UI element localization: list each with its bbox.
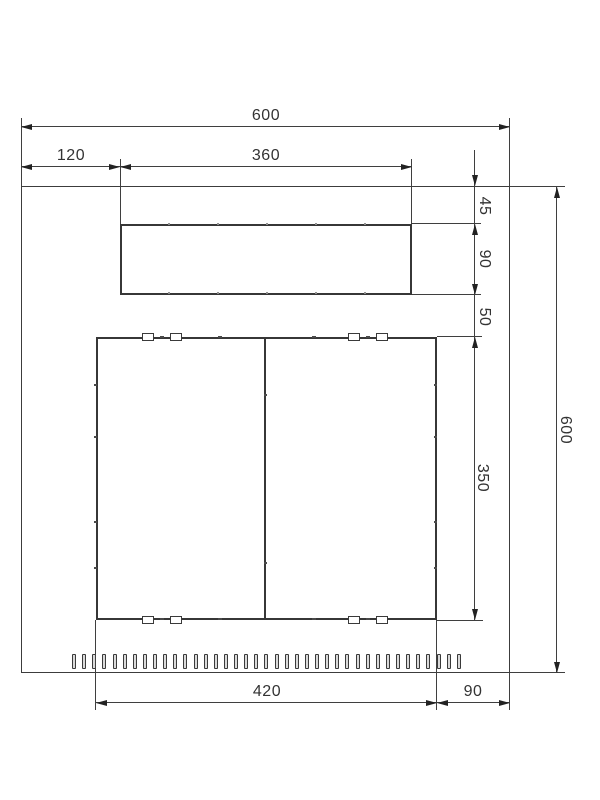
hinge-tick	[434, 384, 437, 386]
hinge-tick	[264, 562, 267, 564]
vent-slot	[72, 654, 76, 669]
arrow-icon	[96, 700, 107, 706]
dim-label-vent-height: 90	[475, 250, 493, 269]
vent-edge-dot	[266, 292, 268, 294]
dim-label-door-height: 350	[473, 464, 491, 492]
vent-slot	[406, 654, 410, 669]
arrow-icon	[472, 224, 478, 235]
dim-label-overall-height: 600	[556, 416, 574, 444]
vent-slot	[396, 654, 400, 669]
vent-slot-row	[72, 654, 461, 669]
vent-slot	[366, 654, 370, 669]
door-clip	[376, 616, 388, 624]
vent-opening-rect	[120, 224, 412, 295]
hinge-tick	[434, 521, 437, 523]
vent-slot	[113, 654, 117, 669]
dim-label-overall-width: 600	[252, 107, 280, 125]
edge-mark	[218, 336, 222, 338]
arrow-icon	[472, 284, 478, 295]
vent-slot	[356, 654, 360, 669]
vent-edge-dot	[266, 223, 268, 225]
ext-line	[412, 223, 481, 224]
vent-slot	[376, 654, 380, 669]
dim-label-vent-width: 360	[252, 147, 280, 165]
hinge-tick	[434, 567, 437, 569]
edge-mark	[160, 618, 164, 620]
edge-mark	[366, 618, 370, 620]
arrow-icon	[554, 662, 560, 673]
edge-mark	[312, 618, 316, 620]
hinge-tick	[94, 384, 97, 386]
dim-line-offset-vent	[21, 166, 412, 167]
vent-slot	[153, 654, 157, 669]
vent-slot	[123, 654, 127, 669]
door-clip	[348, 333, 360, 341]
arrow-icon	[472, 337, 478, 348]
door-clip	[142, 616, 154, 624]
door-clip	[170, 333, 182, 341]
vent-slot	[275, 654, 279, 669]
vent-slot	[234, 654, 238, 669]
arrow-icon	[472, 175, 478, 186]
vent-edge-dot	[217, 292, 219, 294]
dim-label-right-offset: 90	[464, 683, 483, 701]
arrow-icon	[499, 700, 510, 706]
hinge-tick	[94, 521, 97, 523]
vent-slot	[325, 654, 329, 669]
vent-slot	[194, 654, 198, 669]
vent-slot	[254, 654, 258, 669]
ext-line	[412, 294, 481, 295]
vent-slot	[183, 654, 187, 669]
arrow-icon	[472, 609, 478, 620]
hinge-tick	[94, 567, 97, 569]
arrow-icon	[426, 700, 437, 706]
drawing-canvas: 600 120 360 45 90 50 350 600 420 90	[0, 0, 600, 800]
door-clip	[348, 616, 360, 624]
door-clip	[170, 616, 182, 624]
ext-line	[436, 620, 437, 710]
vent-edge-dot	[217, 223, 219, 225]
edge-mark	[218, 618, 222, 620]
edge-mark	[366, 336, 370, 338]
vent-slot	[295, 654, 299, 669]
hinge-tick	[94, 436, 97, 438]
vent-edge-dot	[364, 223, 366, 225]
edge-mark	[160, 336, 164, 338]
vent-edge-dot	[315, 223, 317, 225]
arrow-icon	[120, 164, 131, 170]
vent-edge-dot	[364, 292, 366, 294]
door-divider-line	[264, 337, 266, 620]
door-clip	[376, 333, 388, 341]
vent-slot	[345, 654, 349, 669]
hinge-tick	[434, 436, 437, 438]
dim-label-left-offset: 120	[57, 147, 85, 165]
vent-slot	[214, 654, 218, 669]
arrow-icon	[109, 164, 120, 170]
vent-edge-dot	[168, 292, 170, 294]
vent-slot	[264, 654, 268, 669]
door-frame-rect	[96, 337, 437, 620]
vent-edge-dot	[315, 292, 317, 294]
dim-line-overall-width	[21, 126, 510, 127]
vent-slot	[315, 654, 319, 669]
vent-slot	[133, 654, 137, 669]
vent-slot	[173, 654, 177, 669]
vent-slot	[204, 654, 208, 669]
vent-slot	[457, 654, 461, 669]
vent-slot	[416, 654, 420, 669]
dim-label-vent-top-gap: 45	[475, 197, 493, 216]
vent-slot	[102, 654, 106, 669]
vent-slot	[426, 654, 430, 669]
arrow-icon	[554, 187, 560, 198]
vent-slot	[244, 654, 248, 669]
dim-label-door-width: 420	[253, 683, 281, 701]
arrow-icon	[499, 124, 510, 130]
vent-slot	[224, 654, 228, 669]
dim-label-vent-door-gap: 50	[475, 308, 493, 327]
edge-mark	[312, 336, 316, 338]
vent-slot	[447, 654, 451, 669]
ext-line	[437, 620, 483, 621]
arrow-icon	[21, 164, 32, 170]
hinge-tick	[264, 394, 267, 396]
vent-slot	[437, 654, 441, 669]
dim-line-right-chain	[474, 150, 475, 620]
vent-slot	[335, 654, 339, 669]
door-clip	[142, 333, 154, 341]
vent-slot	[82, 654, 86, 669]
vent-slot	[305, 654, 309, 669]
ext-line	[95, 620, 96, 710]
vent-slot	[285, 654, 289, 669]
arrow-icon	[21, 124, 32, 130]
arrow-icon	[401, 164, 412, 170]
vent-edge-dot	[168, 223, 170, 225]
vent-slot	[143, 654, 147, 669]
vent-slot	[163, 654, 167, 669]
arrow-icon	[437, 700, 448, 706]
vent-slot	[386, 654, 390, 669]
